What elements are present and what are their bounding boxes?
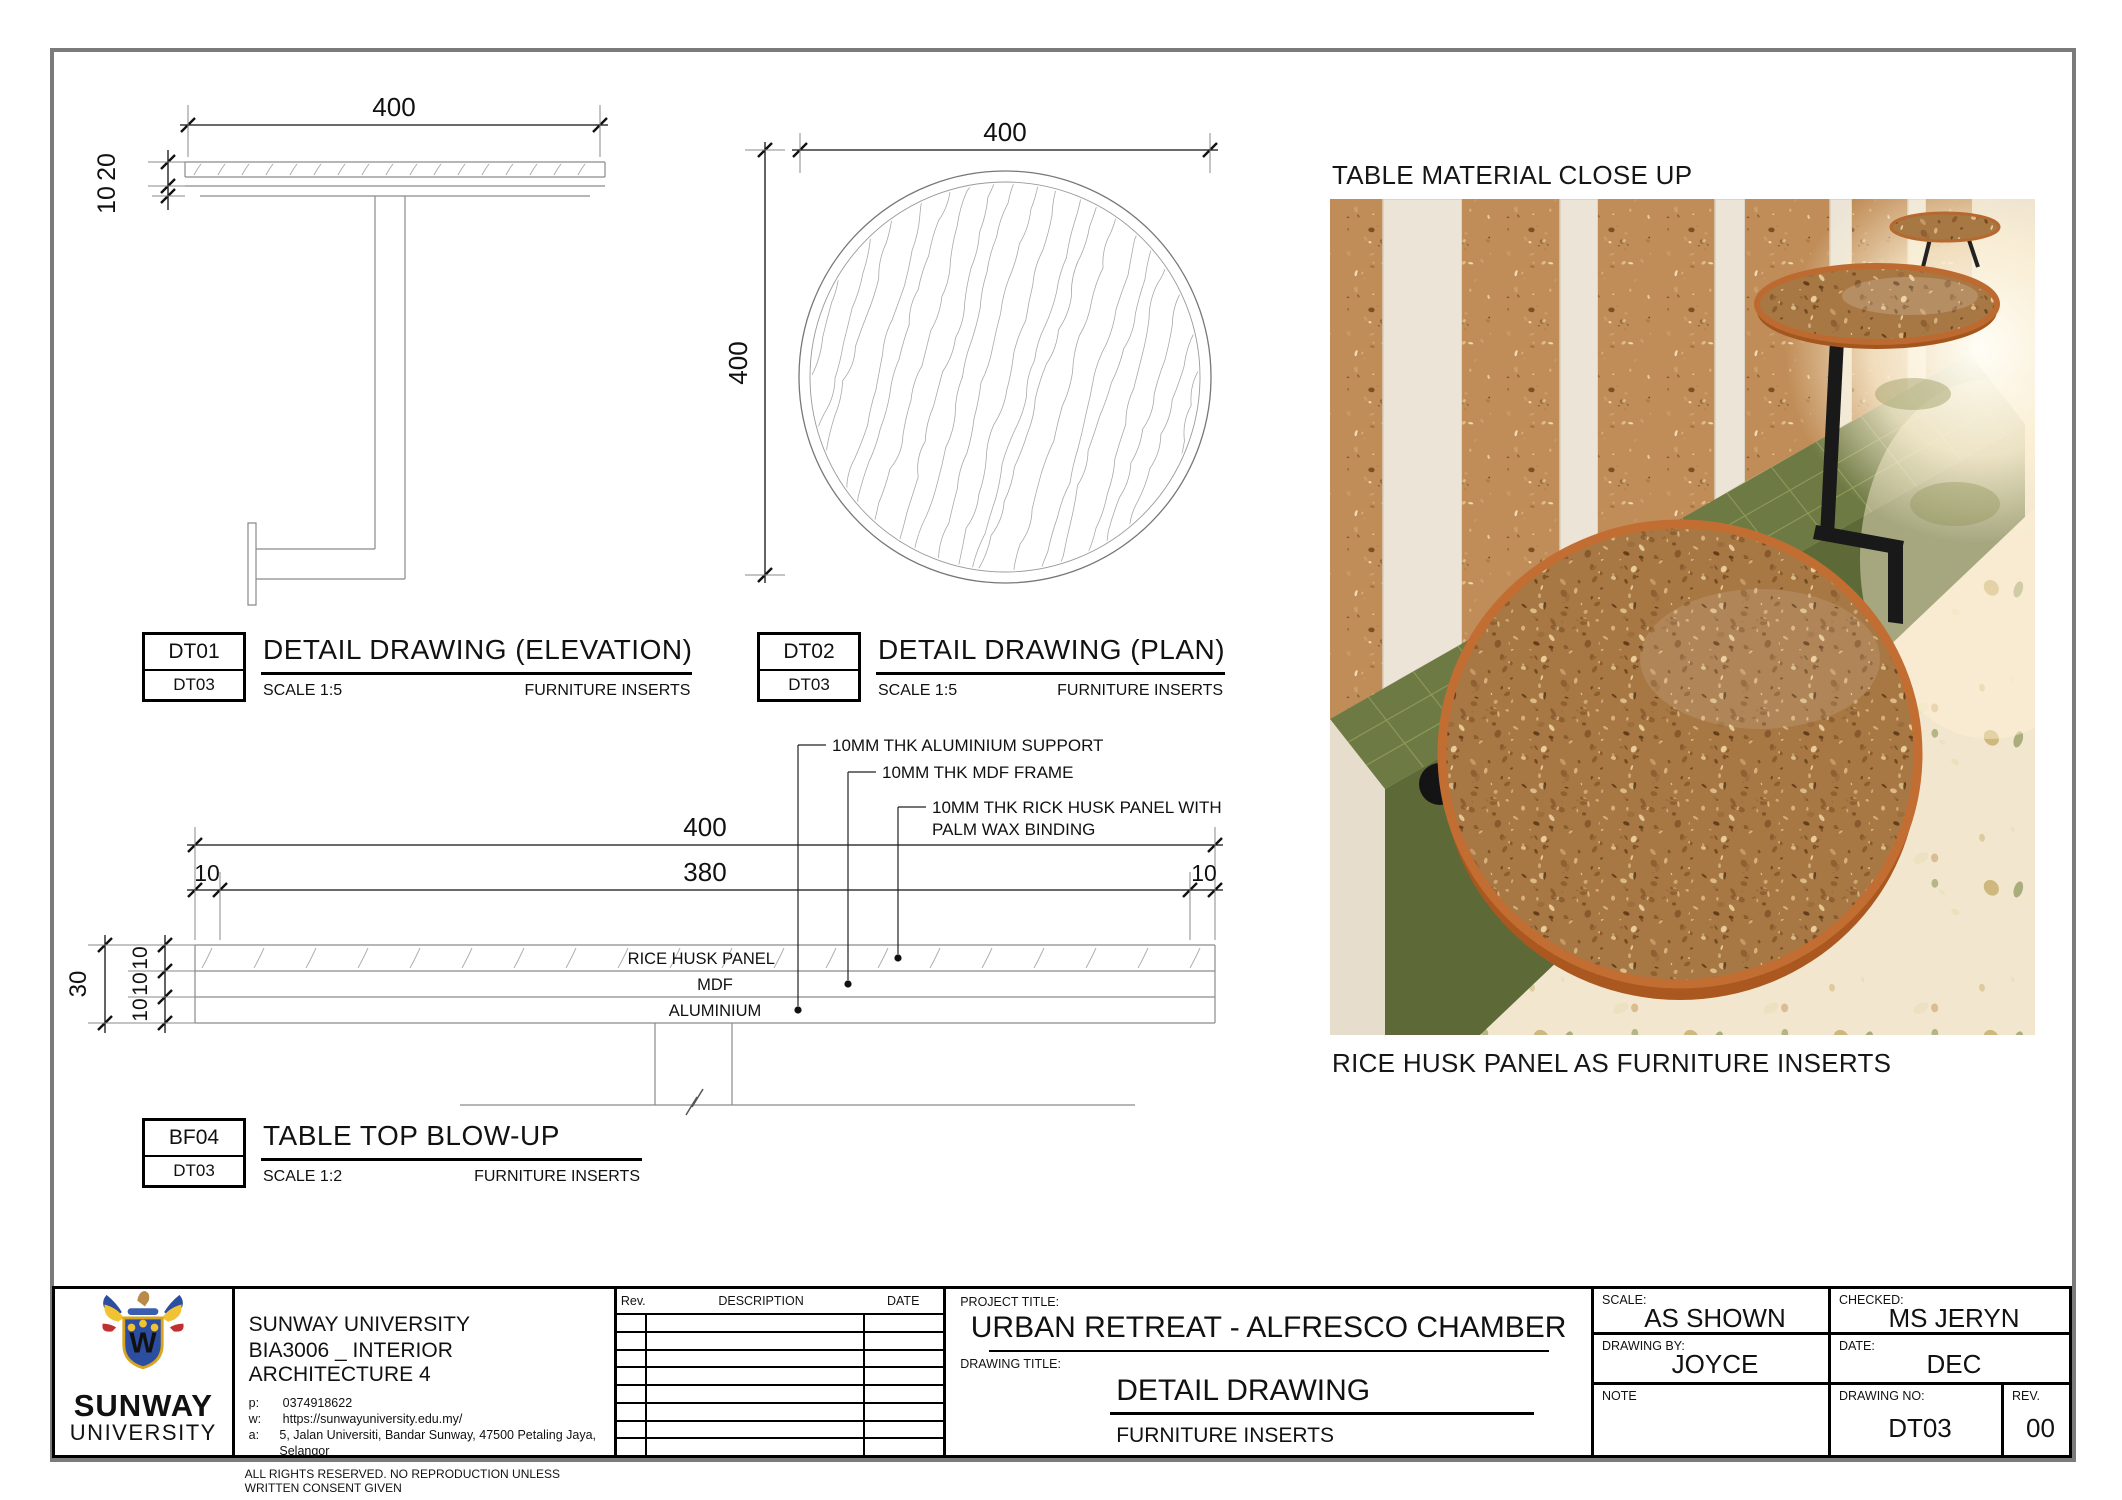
checked-value: MS JERYN — [1839, 1303, 2069, 1334]
elevation-dim-top: 20 — [93, 153, 121, 181]
svg-text:W: W — [130, 1327, 158, 1359]
metadata-cell: SCALE: AS SHOWN CHECKED: MS JERYN DRAWIN… — [1594, 1289, 2069, 1455]
distant-cushion — [1875, 378, 1951, 410]
revision-row — [617, 1333, 943, 1351]
elevation-dim-bottom: 10 — [93, 186, 121, 214]
sunway-crest-icon: W — [95, 1289, 191, 1389]
blowup-layer-dim-1: 10 — [129, 946, 152, 969]
project-title: URBAN RETREAT - ALFRESCO CHAMBER — [960, 1311, 1577, 1345]
blowup-sheet-ref: DT03 — [145, 1157, 243, 1185]
web-value: https://sunwayuniversity.edu.my/ — [283, 1411, 463, 1427]
revision-table: Rev. DESCRIPTION DATE — [617, 1289, 946, 1455]
revision-row — [617, 1404, 943, 1422]
drawing-title-rule — [1110, 1412, 1534, 1415]
rev-label: REV. — [2012, 1389, 2069, 1403]
layer-label-mdf: MDF — [697, 976, 733, 994]
web-label: w: — [249, 1411, 283, 1427]
scale-field: SCALE: AS SHOWN — [1594, 1289, 1831, 1332]
phone-label: p: — [249, 1395, 283, 1411]
foreground-table — [1442, 524, 1918, 1000]
photo-heading: TABLE MATERIAL CLOSE UP — [1332, 160, 1692, 191]
blowup-view-label: BF04 DT03 TABLE TOP BLOW-UP SCALE 1:2 FU… — [142, 1118, 642, 1188]
checked-field: CHECKED: MS JERYN — [1831, 1289, 2069, 1332]
elevation-title: DETAIL DRAWING (ELEVATION) — [261, 632, 692, 675]
note-field: NOTE — [1594, 1385, 1831, 1455]
rev-value: 00 — [2012, 1413, 2069, 1444]
elevation-code: DT01 — [145, 635, 243, 671]
rev-col-header: Rev. — [617, 1294, 659, 1308]
drawing-no-value: DT03 — [1839, 1413, 2001, 1444]
plan-view-label: DT02 DT03 DETAIL DRAWING (PLAN) SCALE 1:… — [757, 632, 1225, 702]
revision-row — [617, 1386, 943, 1404]
university-logo: W SUNWAY UNIVERSITY — [55, 1289, 235, 1455]
callout-mdf-frame: 10MM THK MDF FRAME — [882, 763, 1073, 782]
drawing-no-field: DRAWING NO: DT03 — [1831, 1385, 2004, 1455]
photo-caption: RICE HUSK PANEL AS FURNITURE INSERTS — [1332, 1048, 1891, 1079]
blowup-subtitle: FURNITURE INSERTS — [474, 1168, 640, 1186]
drawn-by-value: JOYCE — [1602, 1349, 1828, 1380]
date-col-header: DATE — [863, 1294, 943, 1308]
plan-code: DT02 — [760, 635, 858, 671]
revision-row — [617, 1368, 943, 1386]
note-label: NOTE — [1602, 1389, 1828, 1403]
blowup-drawing: 400 10 380 10 30 10 10 10 RICE HUSK PANE… — [60, 720, 1240, 1150]
photo-render-canvas — [1330, 199, 2035, 1035]
blowup-dim-left: 10 — [194, 860, 220, 886]
drawn-by-field: DRAWING BY: JOYCE — [1594, 1335, 1831, 1382]
plan-dim-width: 400 — [983, 117, 1026, 147]
course-name: BIA3006 _ INTERIOR ARCHITECTURE 4 — [249, 1339, 614, 1387]
revision-row — [617, 1422, 943, 1440]
logo-wordmark: SUNWAY — [74, 1391, 213, 1421]
plan-drawing: 400 400 — [700, 85, 1260, 685]
revision-row — [617, 1439, 943, 1455]
plan-subtitle: FURNITURE INSERTS — [1057, 682, 1223, 700]
address-label: a: — [249, 1427, 280, 1459]
university-name: SUNWAY UNIVERSITY — [249, 1313, 614, 1337]
drawing-title: DETAIL DRAWING — [1116, 1374, 1577, 1408]
layer-label-rice-husk: RICE HUSK PANEL — [628, 950, 775, 968]
callout-aluminium-support: 10MM THK ALUMINIUM SUPPORT — [832, 736, 1103, 755]
revision-row — [617, 1315, 943, 1333]
blowup-dim-total: 400 — [683, 812, 726, 842]
logo-wordmark-sub: UNIVERSITY — [70, 1421, 217, 1445]
description-col-header: DESCRIPTION — [659, 1294, 863, 1308]
plan-label-box: DT02 DT03 — [757, 632, 861, 702]
plan-scale: SCALE 1:5 — [878, 682, 957, 700]
blowup-layer-dim-3: 10 — [129, 998, 152, 1021]
elevation-view-label: DT01 DT03 DETAIL DRAWING (ELEVATION) SCA… — [142, 632, 642, 702]
plan-sheet-ref: DT03 — [760, 671, 858, 699]
university-info-cell: SUNWAY UNIVERSITY BIA3006 _ INTERIOR ARC… — [235, 1289, 617, 1455]
rights-notice: ALL RIGHTS RESERVED. NO REPRODUCTION UNL… — [245, 1467, 614, 1495]
plan-title: DETAIL DRAWING (PLAN) — [876, 632, 1225, 675]
date-field: DATE: DEC — [1831, 1335, 2069, 1382]
blowup-layer-dim-2: 10 — [129, 972, 152, 995]
blowup-title: TABLE TOP BLOW-UP — [261, 1118, 642, 1161]
layer-label-aluminium: ALUMINIUM — [669, 1002, 762, 1020]
elevation-subtitle: FURNITURE INSERTS — [524, 682, 690, 700]
date-value: DEC — [1839, 1349, 2069, 1380]
callout-rice-husk-line2: PALM WAX BINDING — [932, 820, 1095, 839]
blowup-dim-right: 10 — [1191, 860, 1217, 886]
callout-rice-husk-line1: 10MM THK RICK HUSK PANEL WITH — [932, 798, 1222, 817]
address-value: 5, Jalan Universiti, Bandar Sunway, 4750… — [279, 1427, 614, 1459]
elevation-dim-width: 400 — [372, 92, 415, 122]
rev-field: REV. 00 — [2004, 1385, 2069, 1455]
drawing-title-label: DRAWING TITLE: — [960, 1357, 1577, 1371]
revision-table-header: Rev. DESCRIPTION DATE — [617, 1289, 943, 1315]
blowup-dim-depth: 30 — [65, 971, 92, 998]
revision-row — [617, 1351, 943, 1369]
drawing-subtitle: FURNITURE INSERTS — [1116, 1424, 1577, 1448]
blowup-dim-center: 380 — [683, 857, 726, 887]
photo-render — [1330, 199, 2035, 1035]
drawing-no-label: DRAWING NO: — [1839, 1389, 2001, 1403]
project-title-label: PROJECT TITLE: — [960, 1295, 1577, 1309]
project-title-rule — [989, 1350, 1549, 1352]
title-block: W SUNWAY UNIVERSITY SUNWAY UNIVERSITY BI… — [52, 1286, 2072, 1458]
plan-dim-height: 400 — [723, 341, 753, 384]
blowup-code: BF04 — [145, 1121, 243, 1157]
elevation-drawing: 400 20 10 — [60, 60, 660, 620]
blowup-label-box: BF04 DT03 — [142, 1118, 246, 1188]
scale-value: AS SHOWN — [1602, 1303, 1828, 1334]
elevation-sheet-ref: DT03 — [145, 671, 243, 699]
elevation-label-box: DT01 DT03 — [142, 632, 246, 702]
distant-cushion-2 — [1910, 482, 2000, 526]
blowup-scale: SCALE 1:2 — [263, 1168, 342, 1186]
phone-value: 0374918622 — [283, 1395, 353, 1411]
elevation-scale: SCALE 1:5 — [263, 682, 342, 700]
titles-cell: PROJECT TITLE: URBAN RETREAT - ALFRESCO … — [946, 1289, 1594, 1455]
